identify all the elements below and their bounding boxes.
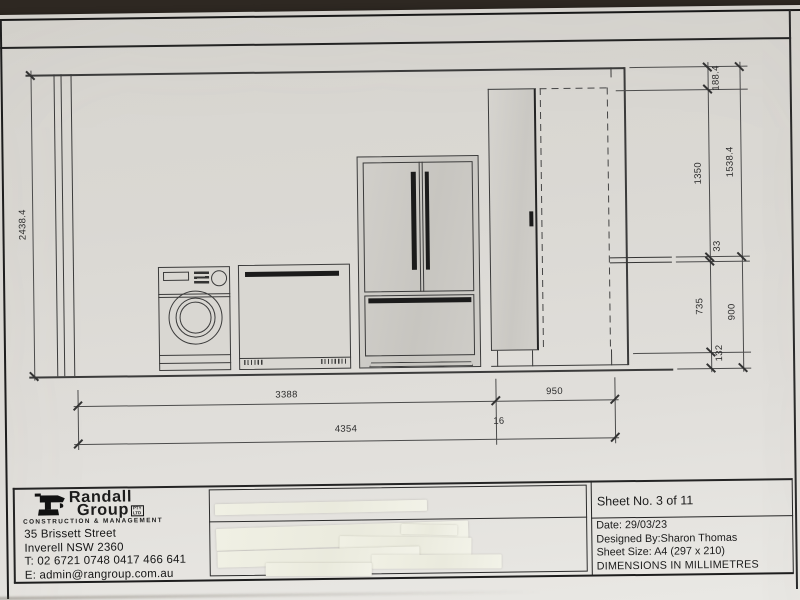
washer-display	[163, 272, 189, 281]
company-tagline: CONSTRUCTION & MANAGEMENT	[23, 517, 163, 526]
cabinet-door-handle	[529, 211, 533, 226]
dim-188: 188.4	[710, 48, 723, 108]
elevation-drawing: 2438.4	[0, 0, 797, 5]
dim-132: 132	[714, 323, 727, 383]
correction-tape-strip	[372, 554, 502, 568]
wall-line-mid	[60, 74, 65, 376]
paper-bottom-edge-shadow	[0, 590, 542, 600]
redacted-panel	[0, 0, 797, 5]
dimension-left: 2438.4	[0, 0, 797, 5]
sheet-border-inner-top	[0, 37, 791, 49]
correction-tape-strip	[401, 524, 457, 535]
dim-950: 950	[524, 386, 584, 399]
dim-900: 900	[726, 282, 739, 342]
ceiling-line	[25, 67, 624, 76]
ceiling-step-stub	[610, 67, 611, 77]
dishwasher-foot-left	[244, 359, 263, 364]
dishwasher-foot-right	[321, 358, 347, 363]
company-panel: Randall Group PTY LTD CONSTRUCTION & MAN…	[0, 0, 797, 5]
french-door-fridge-drawing	[0, 0, 797, 5]
cabinet-hidden-left	[540, 88, 545, 350]
dimension-bottom: 3388 950 16 4354	[0, 0, 797, 5]
dimension-right: 188.4 1350 33 735 132 1538.4 900	[0, 0, 797, 5]
dishwasher-drawing	[0, 0, 797, 5]
dim-3388: 3388	[256, 389, 316, 402]
sheet-date: Date: 29/03/23	[596, 519, 667, 532]
floor-line	[29, 369, 673, 379]
wall-line-outer	[53, 74, 58, 376]
dim-line-bottom-upper	[74, 399, 619, 407]
washer-vent-grille	[194, 271, 209, 284]
cabinet-hidden-right	[607, 87, 612, 349]
washer-dial-knob	[211, 270, 227, 286]
dim-4354: 4354	[316, 423, 376, 436]
sheet-border-left	[0, 19, 9, 599]
cabinet-base-line	[491, 364, 628, 367]
dim-16: 16	[469, 415, 529, 428]
correction-tape-strip	[266, 563, 372, 576]
company-email: E: admin@rangroup.com.au	[25, 567, 174, 581]
photo-of-drawing-sheet: 2438.4	[0, 0, 800, 600]
company-suffix-badge: PTY LTD	[131, 505, 144, 516]
cabinet-right-side	[623, 67, 628, 365]
sheet-border-outer-top	[0, 9, 800, 22]
bench-top	[610, 257, 672, 264]
sheet-number: Sheet No. 3 of 11	[597, 493, 694, 508]
sheet-info-panel: Sheet No. 3 of 11 Date: 29/03/23 Designe…	[0, 0, 797, 5]
dim-wall-height: 2438.4	[17, 195, 30, 255]
company-address-line2: Inverell NSW 2360	[24, 541, 123, 554]
title-block: Randall Group PTY LTD CONSTRUCTION & MAN…	[0, 0, 797, 5]
sheet-designer: Designed By:Sharon Thomas	[596, 531, 737, 545]
pantry-cabinet-drawing	[0, 0, 797, 5]
dim-line-bottom-lower	[74, 437, 619, 445]
dim-735: 735	[694, 276, 707, 336]
cabinet-hidden-top	[540, 87, 608, 89]
wall-line-inner	[70, 74, 75, 376]
fridge-drawer	[364, 294, 475, 356]
washing-machine-drawing	[0, 0, 797, 5]
company-phone: T: 02 6721 0748 0417 466 641	[25, 554, 187, 568]
dim-line-right-outer	[739, 62, 744, 372]
dim-1350: 1350	[692, 143, 705, 203]
dim-33: 33	[711, 216, 724, 276]
randall-group-logo-icon	[32, 491, 68, 517]
sheet-units: DIMENSIONS IN MILLIMETRES	[597, 558, 759, 572]
paper-sheet: 2438.4	[0, 5, 800, 600]
sheet-border-right	[789, 9, 798, 589]
dim-1538: 1538.4	[724, 132, 737, 192]
sheet-size: Sheet Size: A4 (297 x 210)	[596, 545, 725, 559]
company-address-line1: 35 Brissett Street	[24, 528, 116, 541]
